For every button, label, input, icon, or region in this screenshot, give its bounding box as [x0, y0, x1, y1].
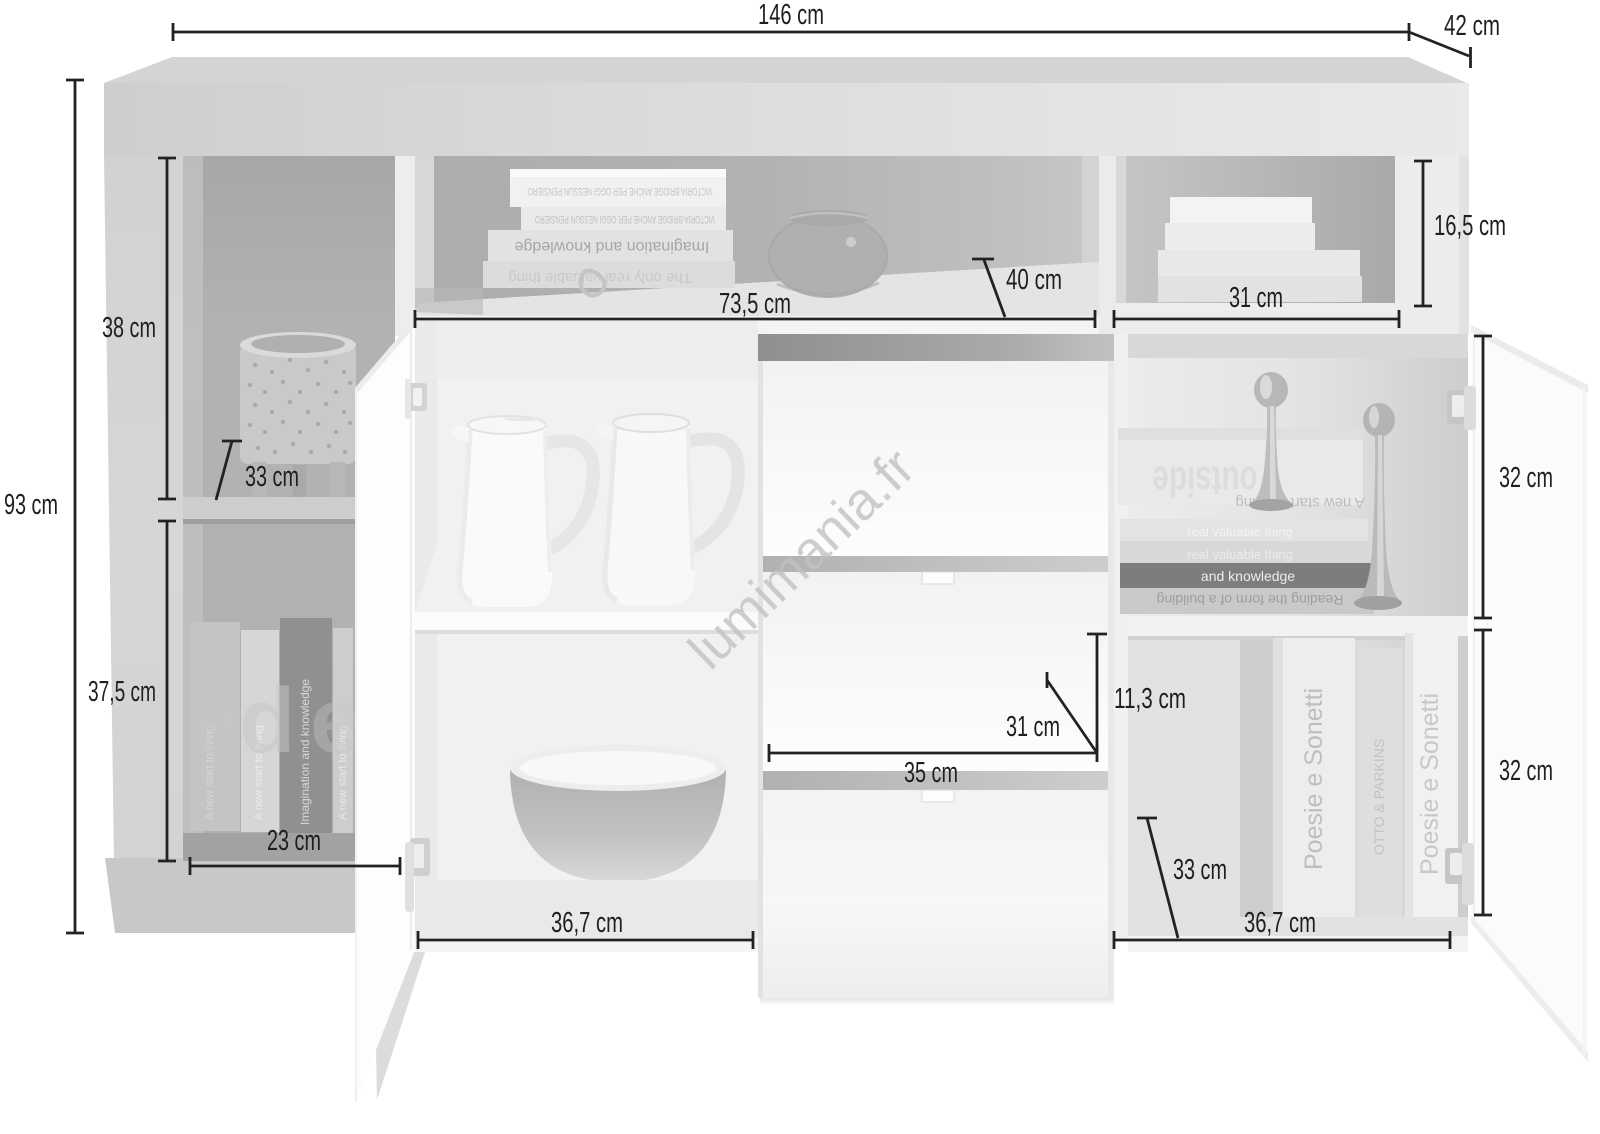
svg-text:33 cm: 33 cm — [1173, 854, 1227, 886]
svg-text:31 cm: 31 cm — [1229, 282, 1283, 314]
svg-text:VICTORIA BRIDGE ANCHE PER OG: VICTORIA BRIDGE ANCHE PER OGGI NESSUN PE… — [535, 213, 715, 225]
svg-text:35 cm: 35 cm — [904, 757, 958, 789]
svg-text:real valuable thing: real valuable thing — [1187, 547, 1293, 562]
svg-text:23 cm: 23 cm — [267, 825, 321, 857]
svg-text:Imagination and knowledge: Imagination and knowledge — [515, 238, 710, 255]
svg-text:33 cm: 33 cm — [245, 461, 299, 493]
svg-text:93 cm: 93 cm — [4, 489, 58, 521]
svg-text:Poesie e Sonetti: Poesie e Sonetti — [1416, 693, 1444, 875]
svg-text:37,5 cm: 37,5 cm — [88, 676, 156, 708]
svg-text:73,5 cm: 73,5 cm — [719, 288, 791, 320]
svg-text:42 cm: 42 cm — [1444, 10, 1500, 42]
svg-text:31 cm: 31 cm — [1006, 711, 1060, 743]
svg-text:36,7 cm: 36,7 cm — [551, 907, 623, 939]
svg-text:VICTORIA BRIDGE ANCHE PER OG: VICTORIA BRIDGE ANCHE PER OGGI NESSUN PE… — [527, 185, 712, 197]
svg-text:Poesie e Sonetti: Poesie e Sonetti — [1300, 688, 1328, 870]
svg-text:real valuable thing: real valuable thing — [1187, 524, 1293, 539]
svg-text:ed: ed — [188, 670, 295, 772]
svg-text:16,5 cm: 16,5 cm — [1434, 210, 1506, 242]
svg-text:11,3 cm: 11,3 cm — [1114, 683, 1186, 715]
svg-text:OTTO & PARKINS: OTTO & PARKINS — [1371, 739, 1387, 855]
svg-text:38 cm: 38 cm — [102, 312, 156, 344]
svg-text:32 cm: 32 cm — [1499, 755, 1553, 787]
svg-text:146 cm: 146 cm — [758, 0, 824, 31]
svg-text:and knowledge: and knowledge — [1201, 568, 1295, 584]
svg-text:40 cm: 40 cm — [1006, 264, 1062, 296]
svg-text:36,7 cm: 36,7 cm — [1244, 907, 1316, 939]
svg-text:Reading the form of a building: Reading the form of a building — [1157, 592, 1344, 608]
svg-text:32 cm: 32 cm — [1499, 462, 1553, 494]
